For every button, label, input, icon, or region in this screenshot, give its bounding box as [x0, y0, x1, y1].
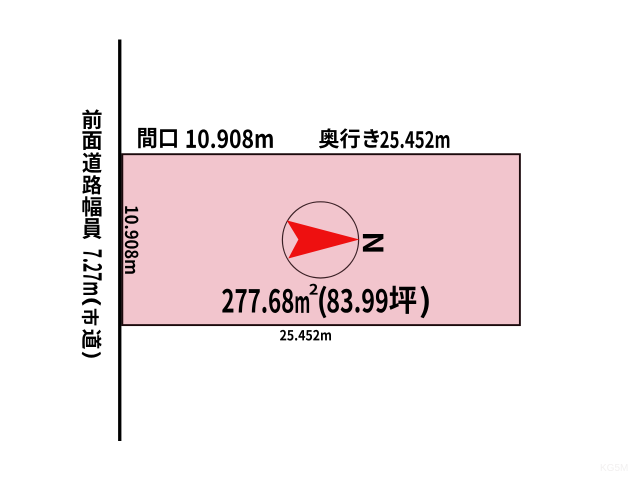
svg-text:KG5M: KG5M	[600, 463, 628, 474]
